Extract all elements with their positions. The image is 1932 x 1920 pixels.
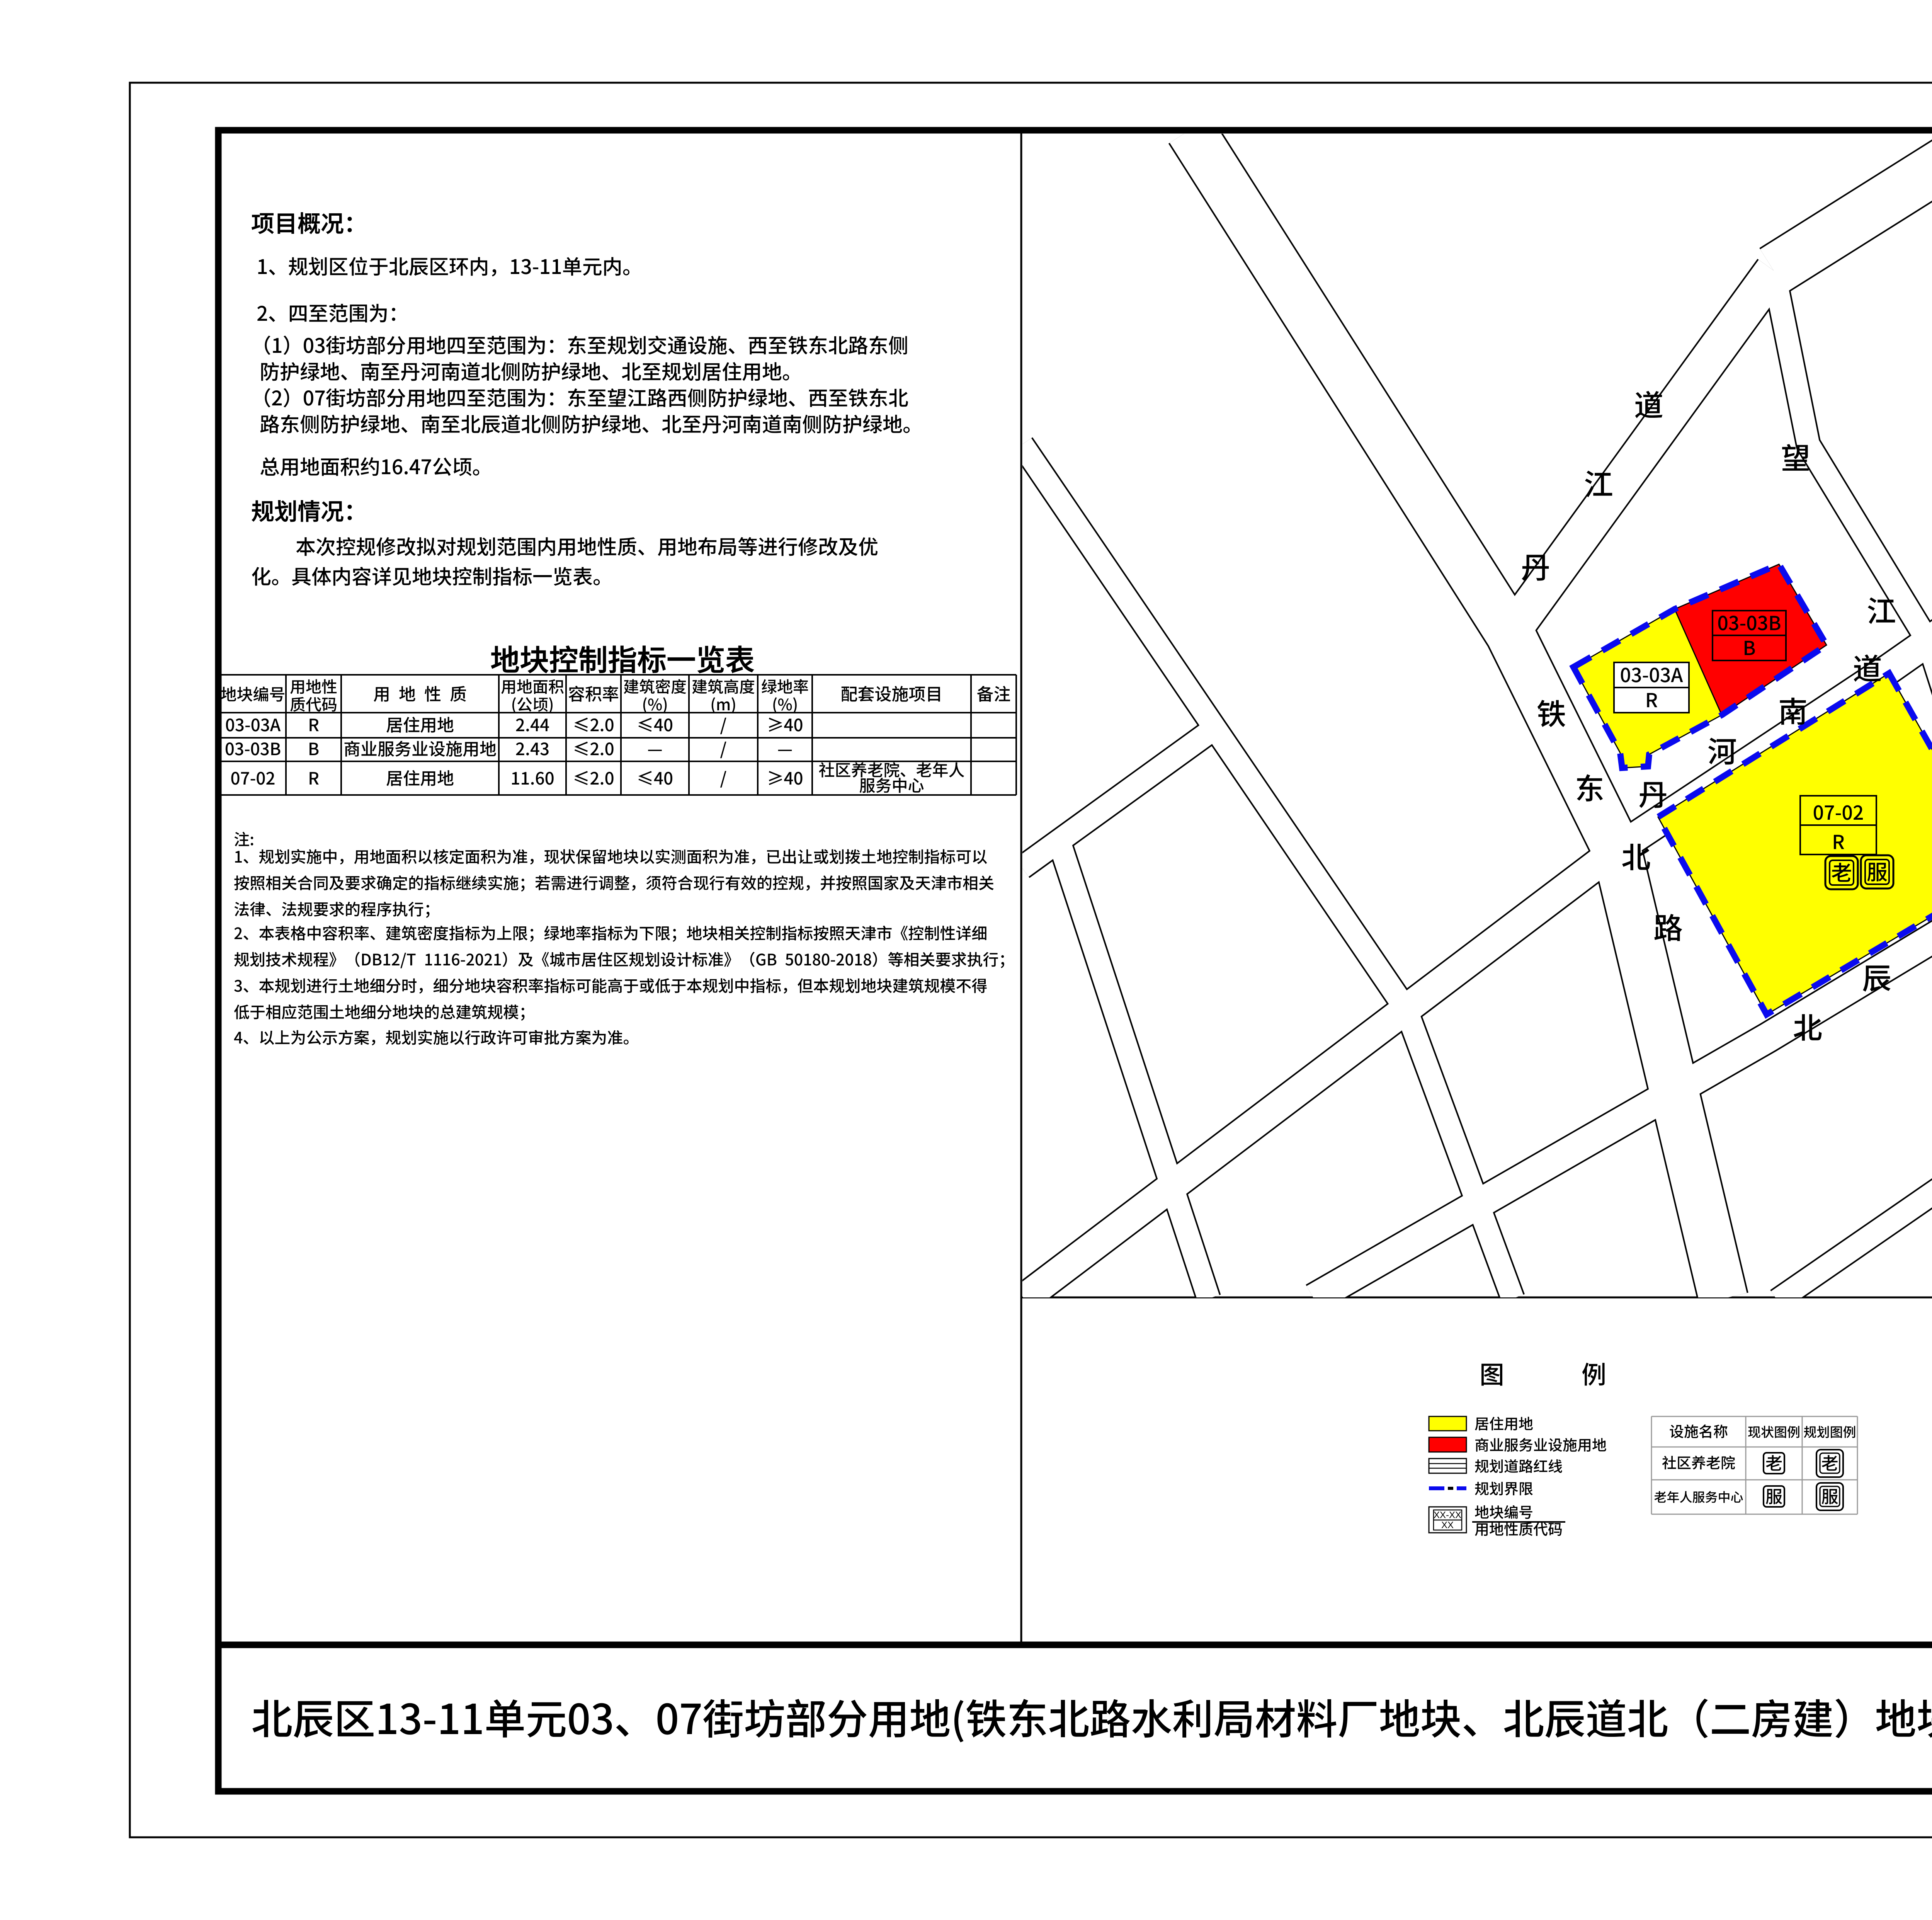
svg-text:XX-XX: XX-XX xyxy=(1434,1510,1461,1520)
svg-text:XX: XX xyxy=(1441,1520,1454,1530)
